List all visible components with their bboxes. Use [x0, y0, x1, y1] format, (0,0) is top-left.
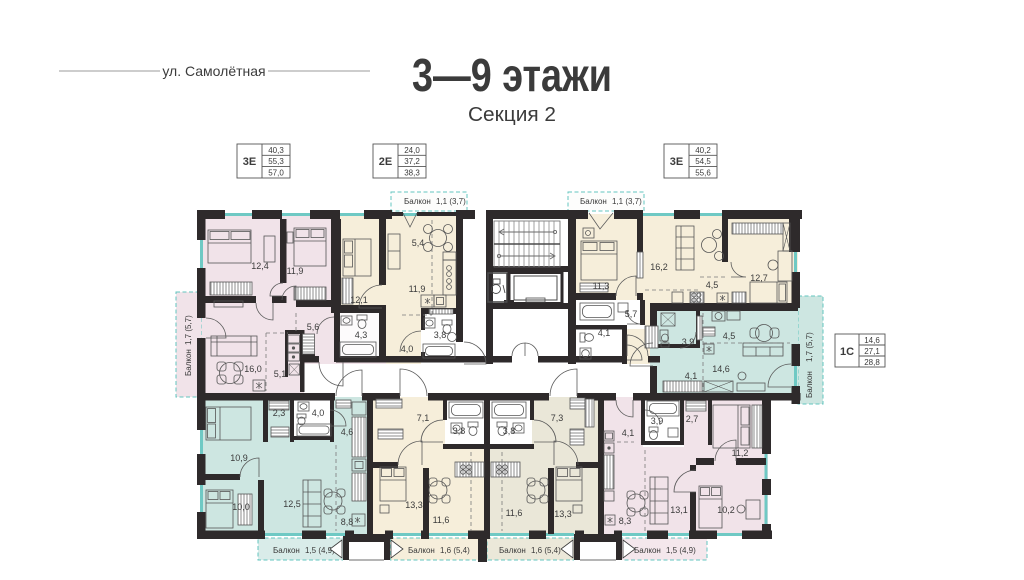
- svg-text:12,1: 12,1: [350, 295, 368, 305]
- svg-text:14,6: 14,6: [864, 336, 880, 345]
- svg-text:1,6 (5,4): 1,6 (5,4): [531, 546, 561, 555]
- svg-text:4,1: 4,1: [685, 371, 698, 381]
- svg-text:Секция 2: Секция 2: [468, 104, 556, 126]
- svg-text:13,1: 13,1: [670, 505, 688, 515]
- svg-text:1,1 (3,7): 1,1 (3,7): [612, 197, 642, 206]
- svg-text:13,3: 13,3: [405, 500, 423, 510]
- svg-text:11,6: 11,6: [433, 515, 450, 525]
- svg-text:16,2: 16,2: [650, 262, 668, 272]
- svg-text:40,2: 40,2: [695, 146, 711, 155]
- svg-text:55,3: 55,3: [268, 157, 284, 166]
- svg-text:11,2: 11,2: [732, 448, 749, 458]
- svg-text:2Е: 2Е: [379, 156, 392, 168]
- svg-text:Балкон: Балкон: [634, 546, 661, 555]
- svg-text:7,1: 7,1: [417, 413, 430, 423]
- svg-text:55,6: 55,6: [695, 169, 711, 178]
- svg-text:54,5: 54,5: [695, 157, 711, 166]
- svg-text:3,8: 3,8: [434, 330, 447, 340]
- svg-text:8,8: 8,8: [341, 517, 354, 527]
- svg-text:4,5: 4,5: [723, 331, 736, 341]
- svg-text:1,1 (3,7): 1,1 (3,7): [436, 197, 466, 206]
- svg-text:3,9: 3,9: [651, 416, 664, 426]
- svg-text:11,9: 11,9: [409, 284, 426, 294]
- svg-text:10,9: 10,9: [230, 453, 248, 463]
- svg-text:2,7: 2,7: [686, 414, 699, 424]
- svg-text:8,3: 8,3: [619, 516, 632, 526]
- svg-text:5,4: 5,4: [412, 238, 425, 248]
- svg-text:12,5: 12,5: [283, 499, 301, 509]
- svg-text:14,6: 14,6: [712, 364, 730, 374]
- svg-text:12,4: 12,4: [251, 261, 269, 271]
- svg-text:4,3: 4,3: [355, 330, 368, 340]
- svg-text:1,6 (5,4): 1,6 (5,4): [440, 546, 470, 555]
- svg-text:4,0: 4,0: [312, 408, 325, 418]
- svg-text:27,1: 27,1: [864, 347, 880, 356]
- svg-text:4,1: 4,1: [598, 328, 611, 338]
- svg-text:40,3: 40,3: [268, 146, 284, 155]
- svg-text:13,3: 13,3: [554, 509, 572, 519]
- svg-text:3—9 этажи: 3—9 этажи: [412, 49, 612, 101]
- svg-text:4,5: 4,5: [706, 280, 719, 290]
- svg-text:38,3: 38,3: [404, 169, 420, 178]
- svg-text:4,6: 4,6: [341, 427, 354, 437]
- svg-text:3,9: 3,9: [682, 337, 695, 347]
- svg-text:16,0: 16,0: [244, 364, 262, 374]
- svg-text:1С: 1С: [840, 346, 854, 358]
- svg-text:5,1: 5,1: [274, 369, 287, 379]
- svg-text:Балкон: Балкон: [805, 371, 814, 398]
- svg-text:ул. Самолётная: ул. Самолётная: [162, 63, 265, 79]
- svg-text:1,5 (4,9): 1,5 (4,9): [305, 546, 335, 555]
- svg-text:7,3: 7,3: [551, 413, 564, 423]
- svg-text:10,0: 10,0: [232, 502, 250, 512]
- svg-text:11,3: 11,3: [593, 281, 610, 291]
- svg-text:1,7 (5,7): 1,7 (5,7): [805, 332, 814, 362]
- svg-text:1,7 (5,7): 1,7 (5,7): [184, 315, 193, 345]
- svg-text:2,3: 2,3: [273, 408, 286, 418]
- svg-text:Балкон: Балкон: [580, 197, 607, 206]
- svg-text:10,2: 10,2: [717, 505, 735, 515]
- svg-text:57,0: 57,0: [268, 169, 284, 178]
- svg-text:12,7: 12,7: [750, 273, 768, 283]
- svg-text:Балкон: Балкон: [404, 197, 431, 206]
- svg-text:4,1: 4,1: [622, 428, 635, 438]
- svg-text:Балкон: Балкон: [408, 546, 435, 555]
- svg-text:1,5 (4,9): 1,5 (4,9): [666, 546, 696, 555]
- svg-text:5,6: 5,6: [307, 322, 320, 332]
- svg-text:3,8: 3,8: [453, 426, 466, 436]
- svg-text:Балкон: Балкон: [273, 546, 300, 555]
- svg-text:Балкон: Балкон: [499, 546, 526, 555]
- svg-text:3Е: 3Е: [243, 156, 256, 168]
- svg-text:3Е: 3Е: [670, 156, 683, 168]
- svg-text:3,8: 3,8: [503, 426, 516, 436]
- svg-text:37,2: 37,2: [404, 157, 420, 166]
- svg-text:4,0: 4,0: [401, 344, 414, 354]
- svg-text:Балкон: Балкон: [184, 349, 193, 376]
- svg-text:28,8: 28,8: [864, 358, 880, 367]
- svg-text:11,9: 11,9: [287, 266, 304, 276]
- svg-text:24,0: 24,0: [404, 146, 420, 155]
- svg-text:5,7: 5,7: [625, 309, 638, 319]
- svg-text:11,6: 11,6: [506, 508, 523, 518]
